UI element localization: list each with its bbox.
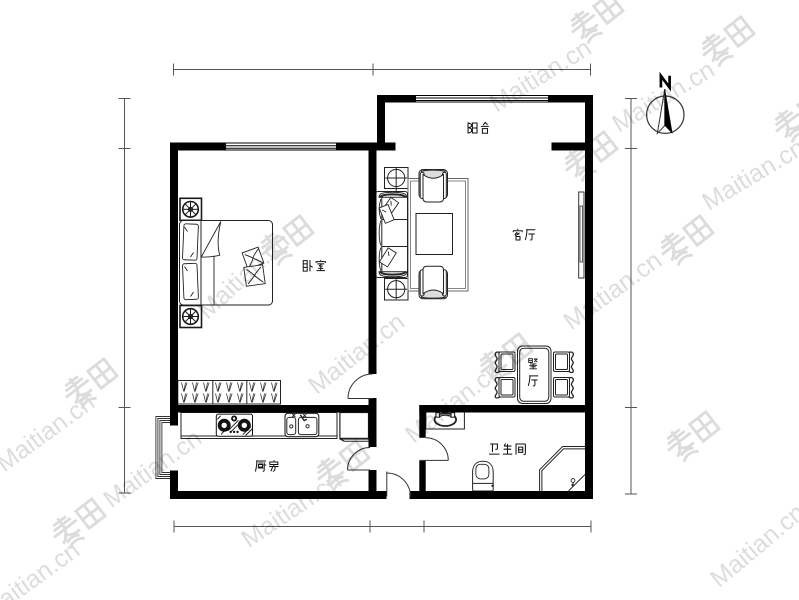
svg-text:Maitian.cn: Maitian.cn (697, 134, 799, 217)
svg-text:Maitian.cn: Maitian.cn (98, 424, 207, 514)
svg-text:Maitian.cn: Maitian.cn (485, 34, 596, 118)
svg-text:Maitian.cn: Maitian.cn (303, 308, 410, 400)
svg-text:Maitian.cn: Maitian.cn (558, 246, 667, 336)
svg-text:Maitian.cn: Maitian.cn (705, 498, 799, 593)
